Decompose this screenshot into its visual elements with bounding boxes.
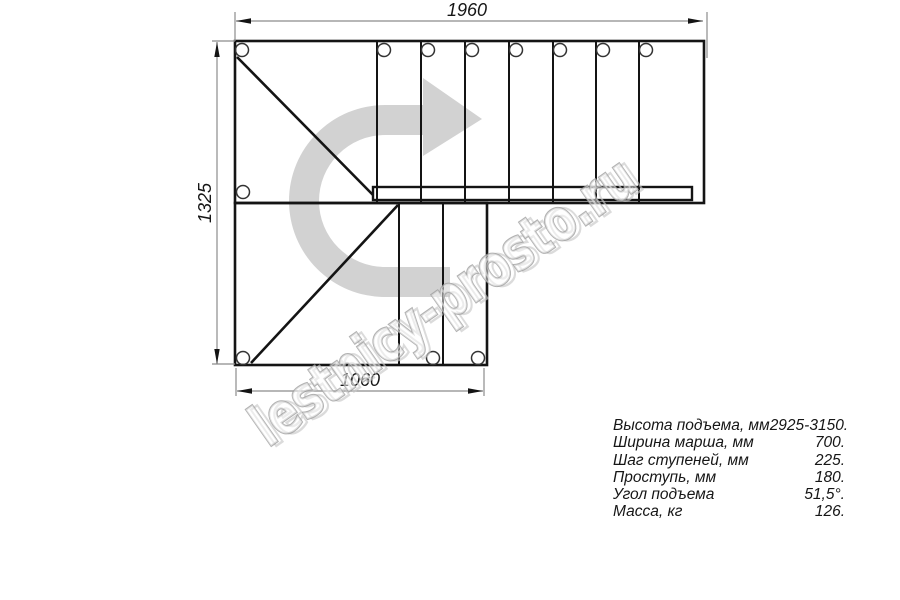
spec-row: Ширина марша, мм 700. <box>613 434 845 451</box>
dimension-arrow <box>214 349 219 364</box>
dimension-left: 1325 <box>195 41 235 364</box>
mounting-hole <box>378 44 391 57</box>
spec-label: Масса, кг <box>613 503 682 520</box>
dimension-left-lines <box>212 41 235 364</box>
spec-value: 700. <box>815 434 845 451</box>
mounting-hole <box>510 44 523 57</box>
dimension-arrow <box>468 388 483 393</box>
dimension-top-label: 1960 <box>447 0 487 20</box>
spec-row: Масса, кг 126. <box>613 503 845 520</box>
spec-label: Высота подъема, мм <box>613 417 770 434</box>
spec-value: 2925-3150. <box>770 417 848 434</box>
mounting-hole <box>422 44 435 57</box>
mounting-hole <box>236 44 249 57</box>
dimension-arrow <box>237 388 252 393</box>
mounting-hole <box>466 44 479 57</box>
dimension-arrow <box>214 42 219 57</box>
dimension-arrow <box>688 18 703 23</box>
mounting-hole <box>554 44 567 57</box>
spec-row: Шаг ступеней, мм 225. <box>613 452 845 469</box>
spec-row: Проступь, мм 180. <box>613 469 845 486</box>
spec-label: Проступь, мм <box>613 469 716 486</box>
spec-value: 180. <box>815 469 845 486</box>
spec-label: Угол подъема <box>613 486 714 503</box>
mounting-hole <box>472 352 485 365</box>
spec-row: Угол подъема 51,5°. <box>613 486 845 503</box>
dimension-arrow <box>236 18 251 23</box>
spec-label: Шаг ступеней, мм <box>613 452 749 469</box>
spec-row: Высота подъема, мм 2925-3150. <box>613 417 845 434</box>
spec-value: 225. <box>815 452 845 469</box>
dimension-left-label: 1325 <box>195 182 215 223</box>
spec-table: Высота подъема, мм 2925-3150. Ширина мар… <box>613 417 845 521</box>
mounting-hole <box>237 186 250 199</box>
spec-value: 51,5°. <box>804 486 845 503</box>
spec-label: Ширина марша, мм <box>613 434 754 451</box>
staircase-plan-page: 1960 1325 1060 lestnicy- <box>0 0 900 600</box>
mounting-hole <box>640 44 653 57</box>
mounting-hole <box>597 44 610 57</box>
spec-value: 126. <box>815 503 845 520</box>
dimension-top: 1960 <box>235 0 707 58</box>
mounting-hole <box>237 352 250 365</box>
